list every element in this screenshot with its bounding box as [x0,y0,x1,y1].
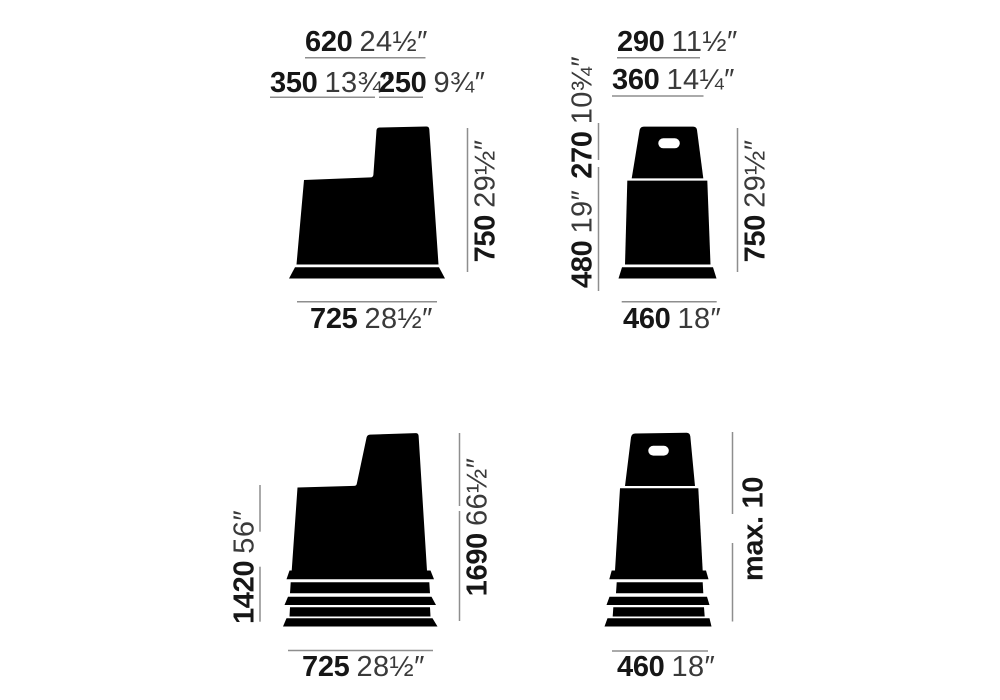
stool-front-handle-hole [658,138,680,148]
dim-label-stack-max-10: max. 10 [740,477,769,581]
stack-side-body [292,433,427,571]
stack-front-lower-section [615,488,703,571]
diagram-canvas [0,0,1000,700]
dim-label-width-back-250: 2509¾″ [379,69,485,98]
stool-front-lower-section [625,181,711,265]
dim-label-width-base-725-bottom: 72528½″ [302,653,425,682]
dim-label-width-top-620: 62024½″ [305,28,428,57]
dim-label-height-1690: 169066½″ [464,458,493,597]
stack-front-rim-3 [605,618,712,626]
stack-front-handle-hole [648,446,669,456]
dim-label-width-shoulder-360: 36014¼″ [612,66,735,95]
stack-side-rim-2 [285,597,437,605]
dim-label-width-base-460-top: 46018″ [623,305,721,334]
dim-label-width-base-460-bottom: 46018″ [617,653,715,682]
dim-label-height-750-side: 75029½″ [472,140,501,263]
dim-label-height-1420: 142056″ [231,510,260,624]
stool-side-body [297,126,439,264]
stack-front-bar-3 [613,607,705,616]
stack-side-rim-1 [287,571,435,580]
dim-label-heights-480-270: 48019″27010¾″ [569,56,598,288]
dim-label-width-base-725-top: 72528½″ [310,305,433,334]
dim-label-width-top-290: 29011½″ [617,28,738,57]
stack-side-rim-3 [283,618,438,626]
stool-front-base-rim [619,267,717,278]
stack-front-rim-1 [609,571,708,580]
stool-side-base-rim [289,267,445,278]
stack-front-rim-2 [607,597,710,605]
stack-side-bar-3 [290,607,431,616]
dim-label-height-750-front: 75029½″ [742,140,771,263]
dim-label-width-step-350: 35013¾″ [270,69,393,98]
stack-front-top-section [625,433,695,486]
stool-front-top-section [632,127,704,179]
stack-side-bar-2 [290,582,430,593]
dimension-diagram: 62024½″ 35013¾″ 2509¾″ 75029½″ 72528½″ 2… [0,0,1000,700]
stack-front-bar-2 [616,582,703,593]
